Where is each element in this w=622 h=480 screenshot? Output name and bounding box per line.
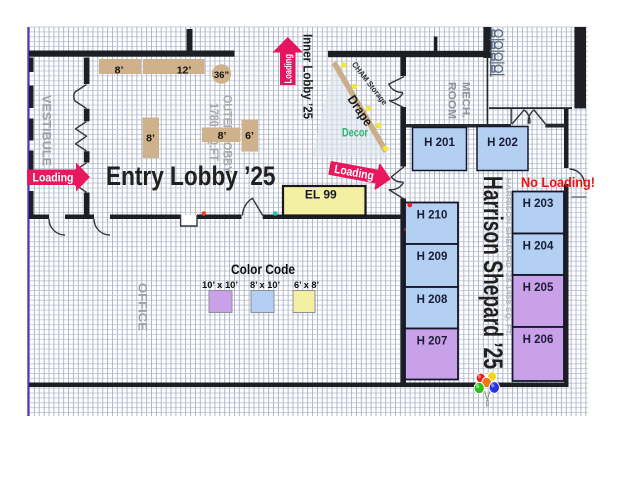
svg-text:Decor: Decor	[342, 128, 368, 140]
svg-text:H 203: H 203	[523, 198, 554, 210]
svg-text:VESTIBULE: VESTIBULE	[40, 95, 52, 166]
svg-text:6’: 6’	[245, 130, 254, 142]
svg-text:H 210: H 210	[417, 210, 448, 222]
svg-text:H 202: H 202	[487, 137, 518, 149]
svg-text:H 201: H 201	[424, 137, 455, 149]
svg-text:8’: 8’	[218, 130, 227, 142]
svg-text:Inner Lobby ’25: Inner Lobby ’25	[301, 34, 316, 119]
svg-text:MECH.: MECH.	[460, 82, 472, 118]
svg-text:H 208: H 208	[417, 294, 448, 306]
svg-text:8’: 8’	[146, 133, 155, 145]
svg-text:12’: 12’	[177, 65, 192, 77]
svg-text:Color Code: Color Code	[231, 261, 295, 277]
svg-text:6’ x 8’: 6’ x 8’	[294, 280, 319, 291]
svg-text:H 207: H 207	[417, 336, 448, 348]
svg-text:ROOM: ROOM	[446, 82, 458, 119]
svg-text:10’ x 10’: 10’ x 10’	[202, 280, 238, 291]
svg-text:Harrison Shepard ’25: Harrison Shepard ’25	[478, 176, 508, 369]
svg-text:H 205: H 205	[523, 282, 554, 294]
svg-text:36”: 36”	[214, 70, 230, 81]
svg-text:H 209: H 209	[417, 251, 448, 263]
svg-text:No Loading!: No Loading!	[521, 175, 595, 190]
svg-text:H 206: H 206	[523, 334, 554, 346]
svg-text:H 204: H 204	[523, 241, 554, 253]
svg-text:Loading: Loading	[283, 54, 295, 84]
svg-text:8’ x 10’: 8’ x 10’	[250, 280, 280, 291]
svg-text:Loading: Loading	[33, 171, 74, 185]
svg-text:Entry Lobby ’25: Entry Lobby ’25	[106, 161, 276, 191]
svg-text:EL 99: EL 99	[305, 188, 337, 202]
svg-text:8’: 8’	[115, 65, 124, 77]
svg-text:OFFICE: OFFICE	[136, 283, 148, 331]
